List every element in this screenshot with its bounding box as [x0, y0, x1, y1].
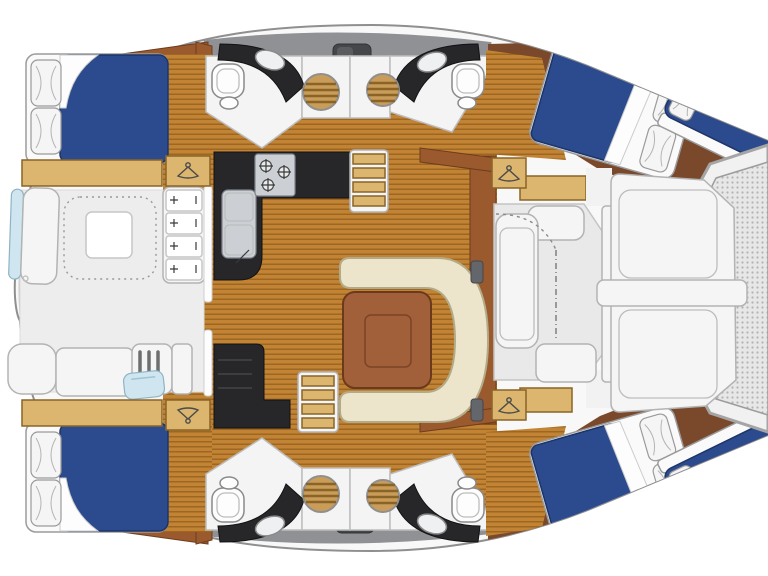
- louvered-porthole: [367, 74, 399, 106]
- salon-door-track-bottom: [204, 330, 212, 396]
- foredeck-lounge: [597, 174, 747, 412]
- cabin-shelf: [22, 160, 162, 186]
- wardrobe: [492, 390, 526, 420]
- aft-cockpit: [8, 186, 212, 400]
- wardrobe: [492, 158, 526, 188]
- dinette: [340, 258, 488, 422]
- cockpit-back-shelf-top: [520, 176, 586, 200]
- pillow: [31, 108, 61, 154]
- corner-seat: [8, 344, 56, 394]
- screenshot-root: Catamaran yacht accommodation deck plan,…: [0, 0, 768, 576]
- crew-toilet: [672, 474, 708, 514]
- dinette-table: [343, 292, 431, 388]
- drawer-4: [166, 259, 202, 280]
- cockpit-bottom-seat: [536, 344, 596, 382]
- galley-sink: [222, 190, 256, 263]
- cabin-wood-floor: [164, 54, 212, 164]
- drawer-2: [166, 213, 202, 234]
- louvered-porthole: [303, 74, 339, 110]
- salon-door-track-top: [204, 186, 212, 302]
- aft-cockpit-curved-bench: [8, 187, 59, 285]
- door-hinge-bottom: [471, 399, 483, 421]
- door-hinge-top: [471, 261, 483, 283]
- crossbeam-bar: [597, 280, 747, 306]
- pillow: [31, 60, 61, 106]
- blue-sink-unit: [123, 370, 165, 400]
- cabin-port-aft: [22, 42, 212, 186]
- cockpit-back-shelf-bottom: [520, 388, 572, 412]
- catamaran-floor-plan: Catamaran yacht accommodation deck plan,…: [0, 0, 768, 576]
- deck-walkway: [586, 168, 612, 206]
- companionway-steps-port: [298, 372, 338, 432]
- round-basin: [731, 449, 761, 479]
- drawer-unit: [163, 187, 205, 283]
- cabin-starboard-aft: [22, 400, 212, 544]
- curved-bench-seat: [20, 187, 59, 284]
- aft-side-strip: [172, 344, 192, 394]
- cockpit-l-bench: [496, 214, 538, 348]
- aft-bench: [56, 348, 134, 396]
- cockpit-square-table: [86, 212, 132, 258]
- drawer-1: [166, 190, 202, 211]
- drawer-3: [166, 236, 202, 257]
- companionway-steps-starboard: [350, 150, 388, 212]
- galley-stove: [255, 154, 295, 196]
- wardrobe: [166, 156, 210, 186]
